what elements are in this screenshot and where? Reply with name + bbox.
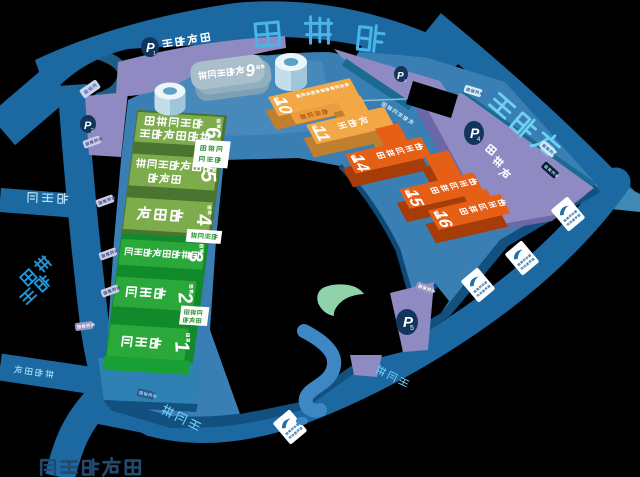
svg-text:1: 1	[153, 51, 156, 57]
svg-text:5: 5	[410, 325, 414, 332]
svg-text:2: 2	[91, 128, 94, 134]
svg-text:P: P	[397, 71, 404, 82]
